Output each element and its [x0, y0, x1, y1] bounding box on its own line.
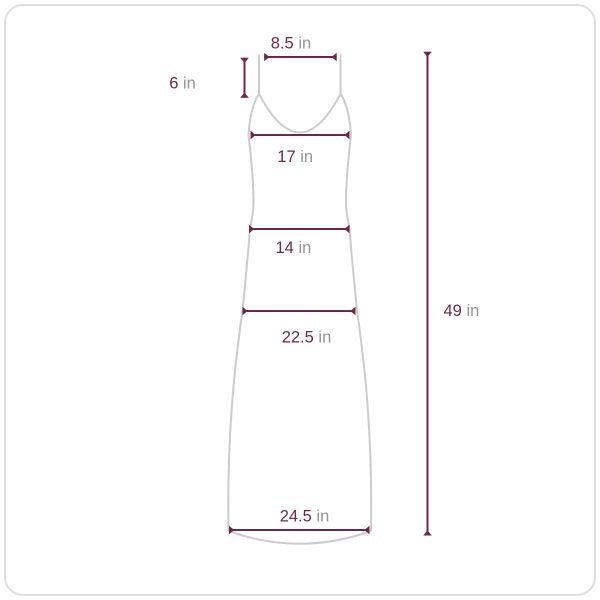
svg-text:22.5 in: 22.5 in — [282, 329, 332, 347]
svg-text:14 in: 14 in — [276, 239, 312, 257]
svg-text:49 in: 49 in — [444, 302, 480, 320]
svg-text:6 in: 6 in — [169, 75, 196, 93]
svg-text:8.5 in: 8.5 in — [271, 35, 311, 53]
svg-text:17 in: 17 in — [277, 148, 313, 166]
svg-text:24.5 in: 24.5 in — [280, 507, 330, 525]
